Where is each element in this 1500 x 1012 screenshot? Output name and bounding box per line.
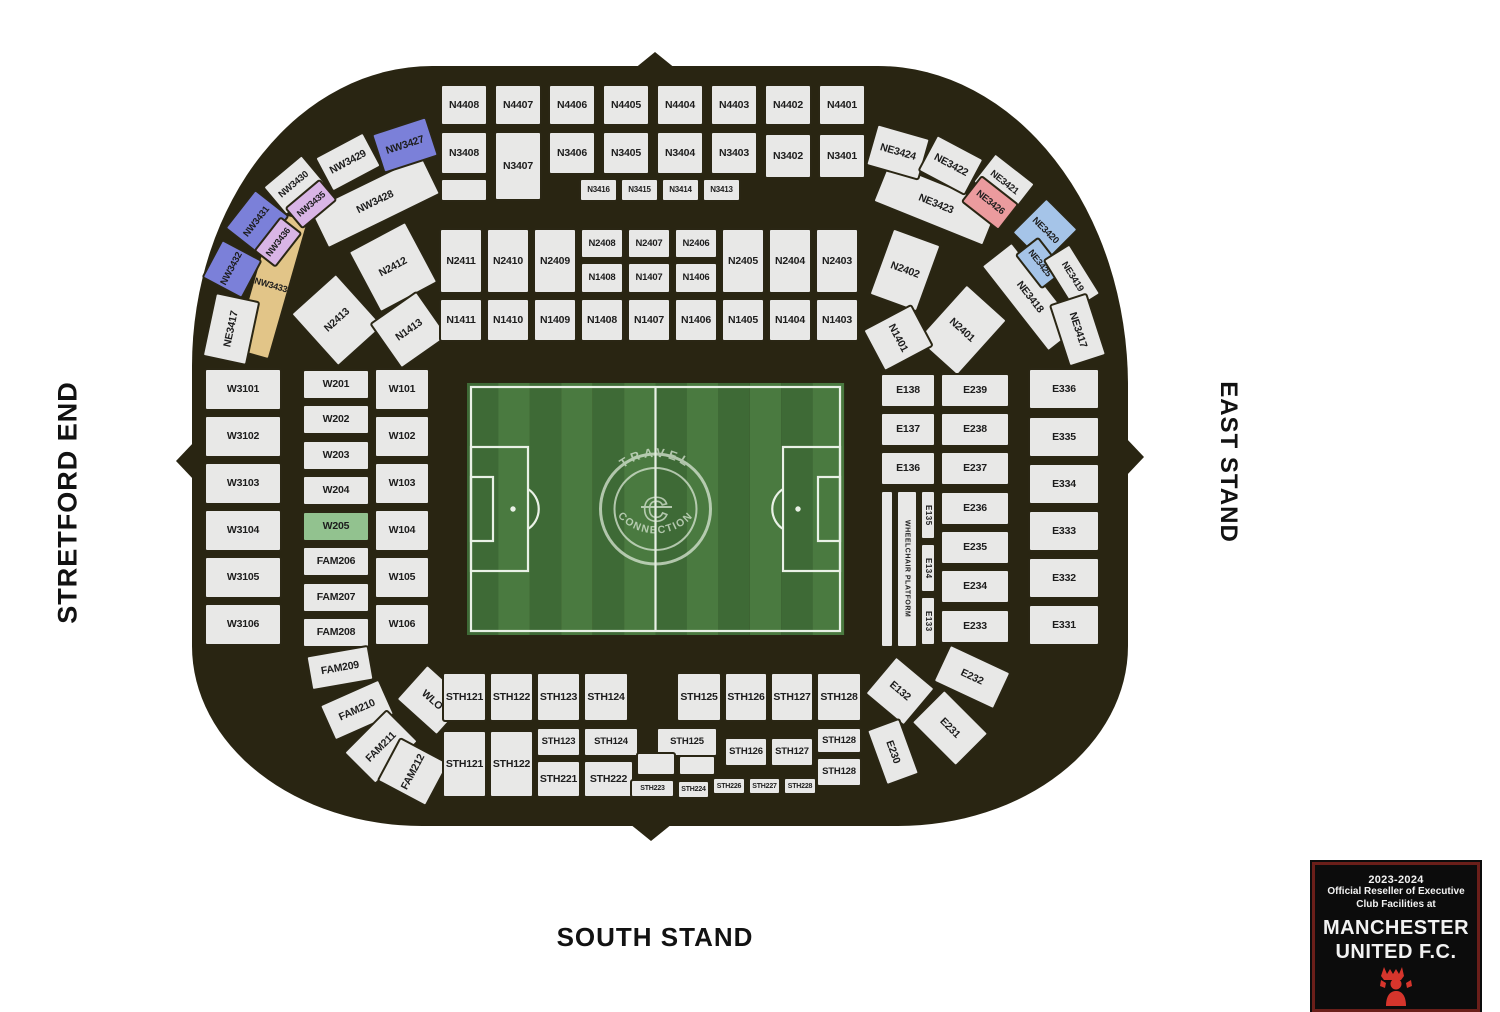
stretford-end-label: STRETFORD END xyxy=(53,343,84,663)
section-n3415[interactable]: N3415 xyxy=(620,178,659,202)
section-n2409[interactable]: N2409 xyxy=(533,228,577,294)
section-n3402[interactable]: N3402 xyxy=(764,133,812,179)
section-w201[interactable]: W201 xyxy=(302,369,370,400)
section-n2406[interactable]: N2406 xyxy=(674,228,718,259)
section-w3105[interactable]: W3105 xyxy=(204,556,282,599)
section-sth121[interactable]: STH121 xyxy=(442,730,487,798)
section-blank[interactable] xyxy=(880,490,894,648)
section-n1409[interactable]: N1409 xyxy=(533,298,577,342)
section-n4401[interactable]: N4401 xyxy=(818,84,866,126)
section-n4408[interactable]: N4408 xyxy=(440,84,488,126)
section-sth122[interactable]: STH122 xyxy=(489,730,534,798)
section-sth128[interactable]: STH128 xyxy=(816,672,862,722)
reseller-badge: 2023-2024 Official Reseller of Executive… xyxy=(1312,862,1480,1012)
section-n1410[interactable]: N1410 xyxy=(486,298,530,342)
section-e333[interactable]: E333 xyxy=(1028,510,1100,552)
section-sth223[interactable]: STH223 xyxy=(630,779,675,798)
section-e233[interactable]: E233 xyxy=(940,609,1010,644)
stadium-seat-map-page: STRETFORD END EAST STAND SOUTH STAND N44… xyxy=(0,0,1500,1001)
section-sth126[interactable]: STH126 xyxy=(724,672,768,722)
section-blank[interactable] xyxy=(440,178,488,202)
section-sth125[interactable]: STH125 xyxy=(676,672,722,722)
red-devil-icon xyxy=(1315,966,1477,1011)
east-notch-icon xyxy=(1126,438,1144,476)
section-sth124[interactable]: STH124 xyxy=(583,672,629,722)
section-sth227[interactable]: STH227 xyxy=(748,777,781,795)
section-w3106[interactable]: W3106 xyxy=(204,603,282,646)
section-sth128[interactable]: STH128 xyxy=(816,757,862,787)
section-n3408[interactable]: N3408 xyxy=(440,131,488,175)
badge-club-name-1: MANCHESTER xyxy=(1315,915,1477,941)
section-n1408[interactable]: N1408 xyxy=(580,262,624,294)
section-w3102[interactable]: W3102 xyxy=(204,415,282,458)
section-w203[interactable]: W203 xyxy=(302,440,370,471)
section-w3101[interactable]: W3101 xyxy=(204,368,282,411)
east-stand-label: EAST STAND xyxy=(1214,312,1242,612)
section-blank[interactable] xyxy=(678,755,716,776)
south-stand-label: SOUTH STAND xyxy=(505,922,805,953)
section-sth127[interactable]: STH127 xyxy=(770,737,814,767)
section-e234[interactable]: E234 xyxy=(940,569,1010,604)
section-sth123[interactable]: STH123 xyxy=(536,672,581,722)
section-w104[interactable]: W104 xyxy=(374,509,430,552)
section-n1407[interactable]: N1407 xyxy=(627,298,671,342)
section-e138[interactable]: E138 xyxy=(880,373,936,408)
section-n1406[interactable]: N1406 xyxy=(674,262,718,294)
section-e236[interactable]: E236 xyxy=(940,491,1010,526)
section-n1403[interactable]: N1403 xyxy=(815,298,859,342)
west-notch-icon xyxy=(176,442,194,480)
section-sth124[interactable]: STH124 xyxy=(583,727,639,757)
section-sth221[interactable]: STH221 xyxy=(536,760,581,798)
section-w3103[interactable]: W3103 xyxy=(204,462,282,505)
section-e239[interactable]: E239 xyxy=(940,373,1010,408)
section-n4406[interactable]: N4406 xyxy=(548,84,596,126)
section-n1406[interactable]: N1406 xyxy=(674,298,718,342)
section-e332[interactable]: E332 xyxy=(1028,557,1100,599)
section-e331[interactable]: E331 xyxy=(1028,604,1100,646)
section-n4407[interactable]: N4407 xyxy=(494,84,542,126)
section-n4404[interactable]: N4404 xyxy=(656,84,704,126)
section-n1405[interactable]: N1405 xyxy=(721,298,765,342)
section-sth121[interactable]: STH121 xyxy=(442,672,487,722)
svg-text:C: C xyxy=(643,491,668,529)
section-e134[interactable]: E134 xyxy=(920,543,936,593)
section-e135[interactable]: E135 xyxy=(920,490,936,540)
section-e237[interactable]: E237 xyxy=(940,451,1010,486)
section-w102[interactable]: W102 xyxy=(374,415,430,458)
section-e137[interactable]: E137 xyxy=(880,412,936,447)
badge-line1: Official Reseller of Executive xyxy=(1315,886,1477,899)
section-w105[interactable]: W105 xyxy=(374,556,430,599)
section-fam208[interactable]: FAM208 xyxy=(302,617,370,648)
section-n2404[interactable]: N2404 xyxy=(768,228,812,294)
section-n3407[interactable]: N3407 xyxy=(494,131,542,201)
section-n4403[interactable]: N4403 xyxy=(710,84,758,126)
section-e335[interactable]: E335 xyxy=(1028,416,1100,458)
section-e235[interactable]: E235 xyxy=(940,530,1010,565)
section-n2411[interactable]: N2411 xyxy=(439,228,483,294)
section-n3405[interactable]: N3405 xyxy=(602,131,650,175)
section-n1404[interactable]: N1404 xyxy=(768,298,812,342)
section-sth224[interactable]: STH224 xyxy=(677,780,710,799)
section-n2403[interactable]: N2403 xyxy=(815,228,859,294)
section-n3413[interactable]: N3413 xyxy=(702,178,741,202)
section-w205[interactable]: W205 xyxy=(302,511,370,542)
badge-club-name-2: UNITED F.C. xyxy=(1315,939,1477,965)
north-notch-icon xyxy=(634,52,676,69)
section-n2407[interactable]: N2407 xyxy=(627,228,671,259)
section-fam206[interactable]: FAM206 xyxy=(302,546,370,577)
section-n1411[interactable]: N1411 xyxy=(439,298,483,342)
section-sth222[interactable]: STH222 xyxy=(583,760,634,798)
section-n1407[interactable]: N1407 xyxy=(627,262,671,294)
section-n1408[interactable]: N1408 xyxy=(580,298,624,342)
section-e133[interactable]: E133 xyxy=(920,596,936,646)
section-w202[interactable]: W202 xyxy=(302,404,370,435)
section-w103[interactable]: W103 xyxy=(374,462,430,505)
section-n2410[interactable]: N2410 xyxy=(486,228,530,294)
section-n2405[interactable]: N2405 xyxy=(721,228,765,294)
section-n2408[interactable]: N2408 xyxy=(580,228,624,259)
section-fam207[interactable]: FAM207 xyxy=(302,582,370,613)
section-e336[interactable]: E336 xyxy=(1028,368,1100,410)
section-w106[interactable]: W106 xyxy=(374,603,430,646)
section-blank[interactable] xyxy=(636,752,676,776)
section-sth122[interactable]: STH122 xyxy=(489,672,534,722)
badge-season: 2023-2024 xyxy=(1315,874,1477,886)
section-w101[interactable]: W101 xyxy=(374,368,430,411)
section-sth228[interactable]: STH228 xyxy=(783,777,817,795)
section-sth128[interactable]: STH128 xyxy=(816,727,862,754)
badge-line2: Club Facilities at xyxy=(1315,899,1477,912)
section-sth126[interactable]: STH126 xyxy=(724,737,768,767)
pitch: TRAVEL CONNECTION C xyxy=(425,346,881,672)
section-n3403[interactable]: N3403 xyxy=(710,131,758,175)
south-notch-icon xyxy=(630,824,672,841)
section-e238[interactable]: E238 xyxy=(940,412,1010,447)
section-n4405[interactable]: N4405 xyxy=(602,84,650,126)
section-e334[interactable]: E334 xyxy=(1028,463,1100,505)
section-w204[interactable]: W204 xyxy=(302,475,370,506)
section-sth226[interactable]: STH226 xyxy=(712,777,746,795)
section-sth127[interactable]: STH127 xyxy=(770,672,814,722)
section-n4402[interactable]: N4402 xyxy=(764,84,812,126)
section-wheelchair-platform[interactable]: WHEELCHAIR PLATFORM xyxy=(896,490,918,648)
section-w3104[interactable]: W3104 xyxy=(204,509,282,552)
section-n3406[interactable]: N3406 xyxy=(548,131,596,175)
section-n3416[interactable]: N3416 xyxy=(579,178,618,202)
section-sth123[interactable]: STH123 xyxy=(536,727,581,757)
section-n3414[interactable]: N3414 xyxy=(661,178,700,202)
section-n3401[interactable]: N3401 xyxy=(818,133,866,179)
section-e136[interactable]: E136 xyxy=(880,451,936,486)
section-n3404[interactable]: N3404 xyxy=(656,131,704,175)
